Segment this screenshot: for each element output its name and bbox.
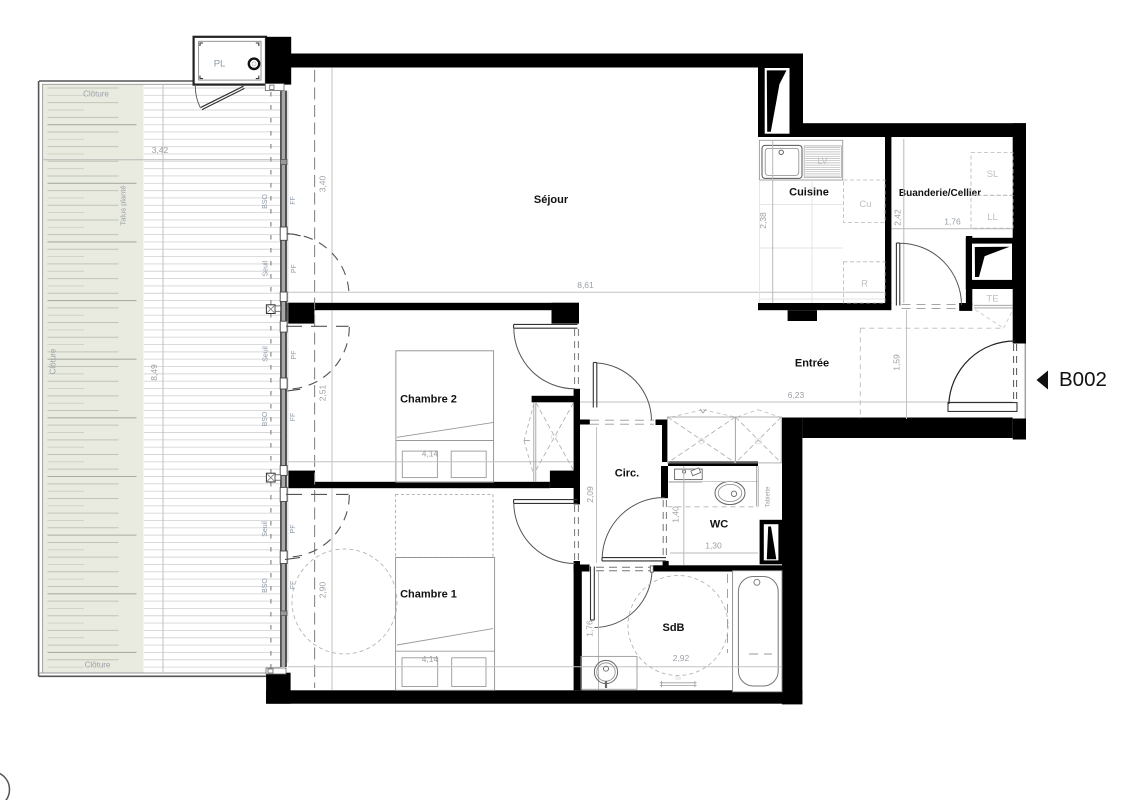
svg-text:LL: LL [987, 212, 998, 223]
svg-text:B002: B002 [1059, 368, 1107, 391]
svg-text:1,40: 1,40 [671, 506, 681, 523]
svg-text:2,42: 2,42 [893, 209, 903, 226]
svg-text:3,42: 3,42 [152, 145, 169, 155]
svg-text:BSO: BSO [262, 411, 269, 426]
svg-text:Clôture: Clôture [49, 348, 58, 374]
svg-text:Clôture: Clôture [83, 90, 109, 99]
svg-text:1,76: 1,76 [585, 620, 595, 637]
svg-text:Circ.: Circ. [615, 468, 639, 480]
svg-text:WC: WC [710, 519, 728, 531]
svg-text:Seuil: Seuil [263, 346, 270, 362]
svg-text:PF: PF [291, 351, 298, 360]
svg-text:6,23: 6,23 [788, 390, 805, 400]
svg-text:FF: FF [290, 196, 297, 205]
svg-text:SdB: SdB [663, 622, 685, 634]
svg-text:1,76: 1,76 [944, 216, 961, 226]
svg-text:PF: PF [291, 264, 298, 273]
svg-text:PF: PF [290, 525, 297, 534]
svg-text:3,40: 3,40 [318, 175, 328, 192]
svg-text:2,51: 2,51 [318, 384, 328, 401]
svg-text:Seuil: Seuil [262, 521, 269, 537]
svg-text:Entrée: Entrée [795, 358, 829, 370]
svg-text:SS: SS [675, 676, 681, 681]
svg-text:Clôture: Clôture [85, 661, 111, 670]
svg-text:R: R [861, 279, 868, 290]
svg-text:1,30: 1,30 [705, 541, 722, 551]
svg-text:FF: FF [290, 413, 297, 422]
svg-text:BSO: BSO [262, 578, 269, 593]
svg-text:Cuisine: Cuisine [789, 187, 829, 199]
svg-text:Chambre 2: Chambre 2 [400, 394, 457, 406]
svg-text:8,61: 8,61 [577, 280, 594, 290]
svg-text:4,14: 4,14 [422, 449, 439, 459]
svg-text:1,59: 1,59 [892, 354, 902, 371]
svg-text:4,14: 4,14 [422, 654, 439, 664]
svg-text:Buanderie/Cellier: Buanderie/Cellier [899, 188, 981, 199]
svg-text:PL: PL [214, 59, 226, 70]
svg-text:BSO: BSO [262, 194, 269, 209]
svg-text:Talus planté: Talus planté [119, 185, 128, 225]
svg-text:SL: SL [987, 169, 999, 180]
svg-text:Cu: Cu [859, 199, 871, 210]
svg-text:2,92: 2,92 [673, 653, 690, 663]
svg-text:LV: LV [817, 156, 827, 166]
svg-text:Séjour: Séjour [534, 194, 569, 206]
svg-text:Seuil: Seuil [263, 260, 270, 276]
svg-text:Tablette: Tablette [766, 486, 772, 508]
svg-text:2,38: 2,38 [758, 212, 768, 229]
svg-text:2,09: 2,09 [585, 486, 595, 503]
svg-text:2,90: 2,90 [318, 581, 328, 598]
svg-text:TE: TE [986, 294, 998, 305]
svg-text:8,49: 8,49 [149, 364, 159, 381]
svg-text:Chambre 1: Chambre 1 [400, 589, 457, 601]
